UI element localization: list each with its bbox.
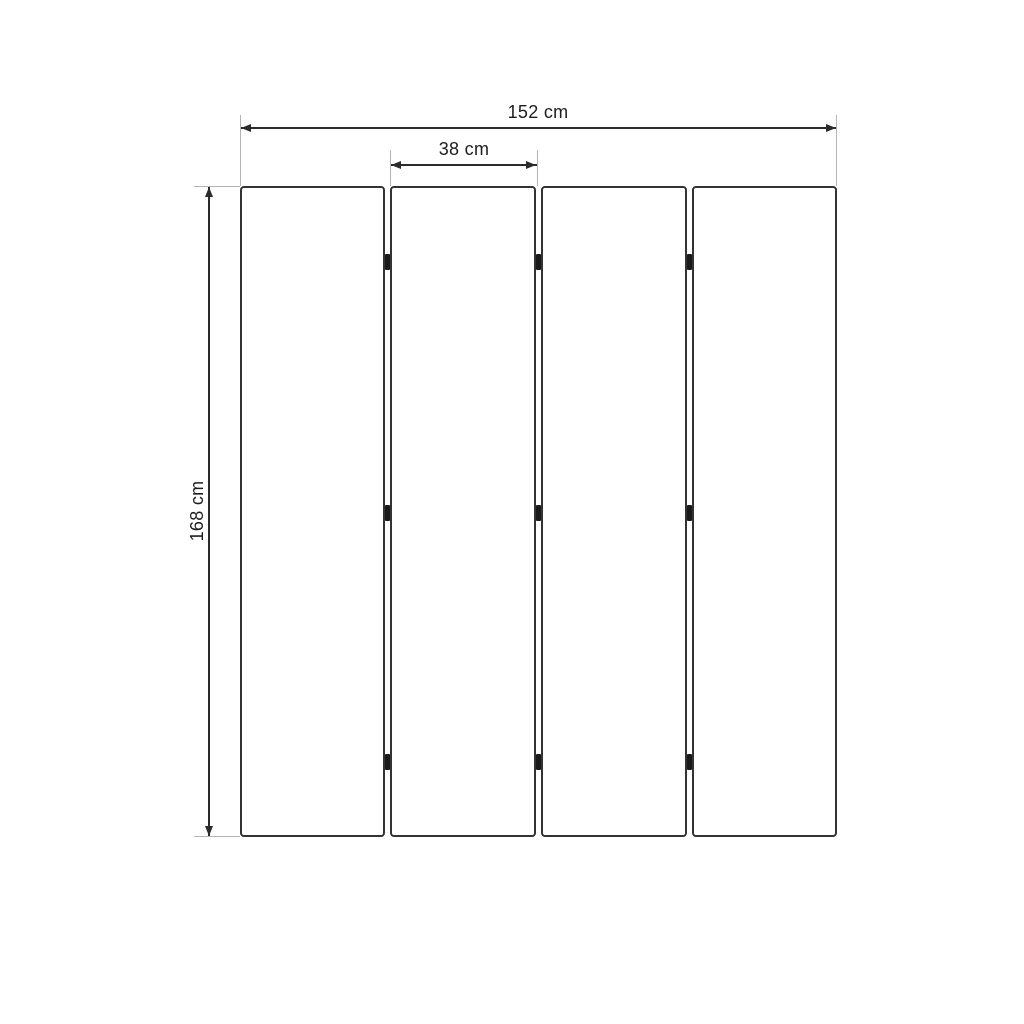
extension-line-bottom bbox=[194, 836, 240, 837]
arrow-down-icon bbox=[205, 826, 213, 836]
hinge bbox=[385, 505, 390, 521]
extension-line-panel-right bbox=[537, 150, 538, 186]
panel-4 bbox=[692, 186, 837, 837]
hinge bbox=[687, 754, 692, 770]
arrow-right-icon bbox=[526, 161, 536, 169]
hinge bbox=[536, 254, 541, 270]
panel-2 bbox=[390, 186, 536, 837]
height-dimension-line bbox=[208, 186, 210, 837]
arrow-up-icon bbox=[205, 187, 213, 197]
extension-line-panel-left bbox=[390, 150, 391, 186]
total-width-dimension-line bbox=[240, 127, 837, 129]
hinge bbox=[536, 754, 541, 770]
hinge bbox=[687, 505, 692, 521]
arrow-left-icon bbox=[391, 161, 401, 169]
panel-width-dimension-line bbox=[390, 164, 537, 166]
panel-width-dimension-label: 38 cm bbox=[439, 140, 490, 158]
extension-line-right bbox=[836, 115, 837, 186]
height-dimension-label: 168 cm bbox=[188, 481, 206, 542]
panel-1 bbox=[240, 186, 385, 837]
diagram-canvas: 152 cm 38 cm 168 cm bbox=[0, 0, 1024, 1024]
hinge bbox=[536, 505, 541, 521]
panel-3 bbox=[541, 186, 687, 837]
arrow-left-icon bbox=[241, 124, 251, 132]
arrow-right-icon bbox=[826, 124, 836, 132]
extension-line-top bbox=[194, 186, 240, 187]
total-width-dimension-label: 152 cm bbox=[508, 103, 569, 121]
hinge bbox=[687, 254, 692, 270]
extension-line-left bbox=[240, 115, 241, 186]
hinge bbox=[385, 254, 390, 270]
hinge bbox=[385, 754, 390, 770]
